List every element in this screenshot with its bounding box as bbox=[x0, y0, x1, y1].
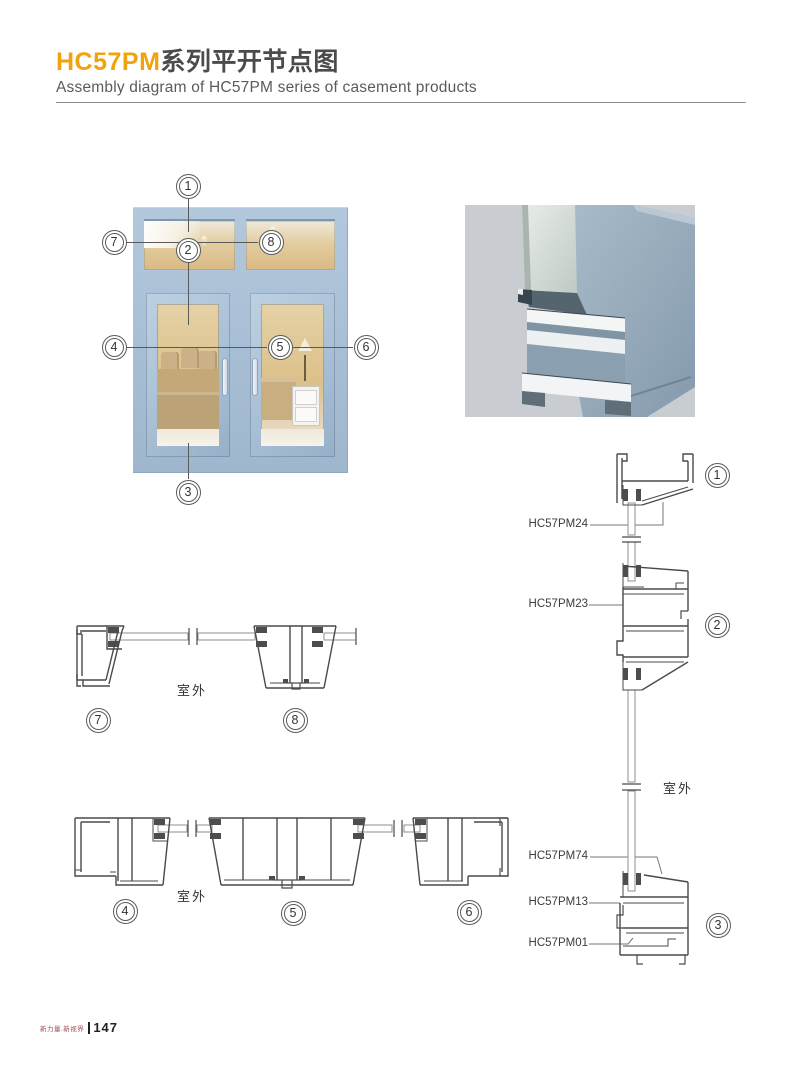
section-callout-7: 7 bbox=[86, 708, 111, 733]
page-footer: 新力量.新视界 147 bbox=[40, 1020, 118, 1035]
nightstand bbox=[292, 386, 320, 426]
footer-divider bbox=[88, 1022, 90, 1034]
sofa-pillow bbox=[181, 348, 199, 368]
section-callout-4: 4 bbox=[113, 899, 138, 924]
section-7-8-svg bbox=[62, 616, 377, 708]
callout-6: 6 bbox=[354, 335, 379, 360]
lamp-stem bbox=[304, 355, 306, 381]
callout-7-number: 7 bbox=[111, 235, 118, 249]
nightstand-drawer bbox=[295, 390, 317, 405]
callout-3-number: 3 bbox=[185, 485, 192, 499]
footer-slogan: 新力量.新视界 bbox=[40, 1023, 84, 1033]
callout-7: 7 bbox=[102, 230, 127, 255]
callout-line-2 bbox=[188, 263, 189, 325]
window-illustration bbox=[133, 207, 348, 473]
part-label-hc57pm23: HC57PM23 bbox=[522, 598, 588, 610]
sofa-pillow bbox=[199, 351, 217, 371]
section-1-number: 1 bbox=[714, 468, 721, 482]
outdoor-label-7-8: 室外 bbox=[177, 680, 207, 699]
right-casement-sash bbox=[250, 293, 335, 457]
right-sash-glass bbox=[261, 304, 324, 446]
section-3-number: 3 bbox=[715, 918, 722, 932]
section-callout-2: 2 bbox=[705, 613, 730, 638]
callout-5-number: 5 bbox=[277, 340, 284, 354]
section-5-number: 5 bbox=[290, 906, 297, 920]
bed bbox=[261, 378, 296, 421]
callout-2: 2 bbox=[176, 238, 201, 263]
left-sash-glass bbox=[157, 304, 219, 446]
title-chinese: 系列平开节点图 bbox=[160, 48, 339, 76]
section-callout-6: 6 bbox=[457, 900, 482, 925]
callout-line-4-5 bbox=[127, 347, 267, 348]
section-callout-3: 3 bbox=[706, 913, 731, 938]
section-7-number: 7 bbox=[95, 713, 102, 727]
right-sash-handle bbox=[252, 358, 258, 396]
section-6-number: 6 bbox=[466, 905, 473, 919]
callout-8-number: 8 bbox=[268, 235, 275, 249]
outdoor-label-4-5-6: 室外 bbox=[177, 886, 207, 905]
horizontal-section-7-8-drawing bbox=[62, 616, 377, 708]
part-label-hc57pm24: HC57PM24 bbox=[522, 518, 588, 530]
section-callout-1: 1 bbox=[705, 463, 730, 488]
callout-3: 3 bbox=[176, 480, 201, 505]
part-label-hc57pm74: HC57PM74 bbox=[522, 850, 588, 862]
callout-2-number: 2 bbox=[185, 243, 192, 257]
nightstand-drawer bbox=[295, 407, 317, 422]
section-callout-5: 5 bbox=[281, 901, 306, 926]
floor bbox=[261, 429, 324, 446]
header-divider bbox=[56, 102, 746, 103]
callout-line-5-6 bbox=[293, 347, 353, 348]
section-2-number: 2 bbox=[714, 618, 721, 632]
page-title: HC57PM系列平开节点图 bbox=[56, 48, 746, 76]
title-series-code: HC57PM bbox=[56, 48, 160, 76]
section-8-number: 8 bbox=[292, 713, 299, 727]
callout-5: 5 bbox=[268, 335, 293, 360]
left-sash-handle bbox=[222, 358, 228, 396]
sofa-seat bbox=[157, 392, 219, 432]
callout-line-3 bbox=[188, 443, 189, 479]
section-callout-8: 8 bbox=[283, 708, 308, 733]
callout-6-number: 6 bbox=[363, 340, 370, 354]
callout-line-1 bbox=[188, 199, 189, 232]
callout-1-number: 1 bbox=[185, 179, 192, 193]
outdoor-label-vertical: 室外 bbox=[663, 778, 693, 797]
page-header: HC57PM系列平开节点图 Assembly diagram of HC57PM… bbox=[56, 48, 746, 103]
callout-4-number: 4 bbox=[111, 340, 118, 354]
section-4-number: 4 bbox=[122, 904, 129, 918]
section-4-5-6-svg bbox=[58, 806, 513, 901]
profile-3d-svg bbox=[465, 205, 695, 417]
page-subtitle: Assembly diagram of HC57PM series of cas… bbox=[56, 79, 746, 97]
horizontal-section-4-5-6-drawing bbox=[58, 806, 513, 901]
callout-4: 4 bbox=[102, 335, 127, 360]
profile-3d-render bbox=[465, 205, 695, 417]
catalog-page: HC57PM系列平开节点图 Assembly diagram of HC57PM… bbox=[0, 0, 800, 1075]
part-label-hc57pm01: HC57PM01 bbox=[522, 937, 588, 949]
callout-1: 1 bbox=[176, 174, 201, 199]
part-label-hc57pm13: HC57PM13 bbox=[522, 896, 588, 908]
page-number: 147 bbox=[93, 1020, 118, 1035]
callout-8: 8 bbox=[259, 230, 284, 255]
lamp-shade bbox=[298, 338, 312, 351]
